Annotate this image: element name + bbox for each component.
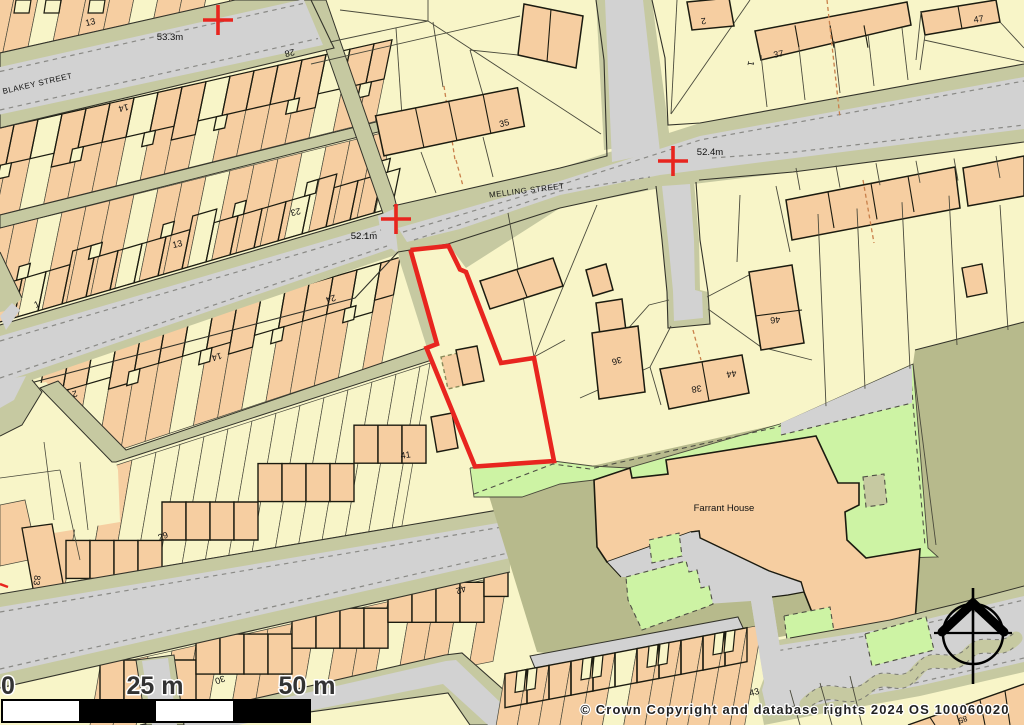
svg-text:52.1m: 52.1m [351, 231, 377, 242]
svg-text:83: 83 [31, 575, 42, 586]
svg-text:44: 44 [726, 368, 738, 380]
svg-text:0: 0 [1, 672, 15, 700]
svg-text:25 m: 25 m [127, 672, 184, 700]
svg-text:47: 47 [973, 13, 984, 24]
svg-text:50 m: 50 m [279, 672, 336, 700]
svg-text:© Crown Copyright and database: © Crown Copyright and database rights 20… [580, 702, 1009, 717]
svg-text:53.3m: 53.3m [157, 32, 183, 43]
svg-text:41: 41 [400, 449, 411, 460]
svg-text:Farrant House: Farrant House [694, 503, 755, 514]
svg-text:52.4m: 52.4m [697, 147, 723, 158]
svg-text:46: 46 [770, 315, 781, 326]
svg-text:37: 37 [773, 48, 785, 60]
svg-text:38: 38 [691, 383, 703, 395]
